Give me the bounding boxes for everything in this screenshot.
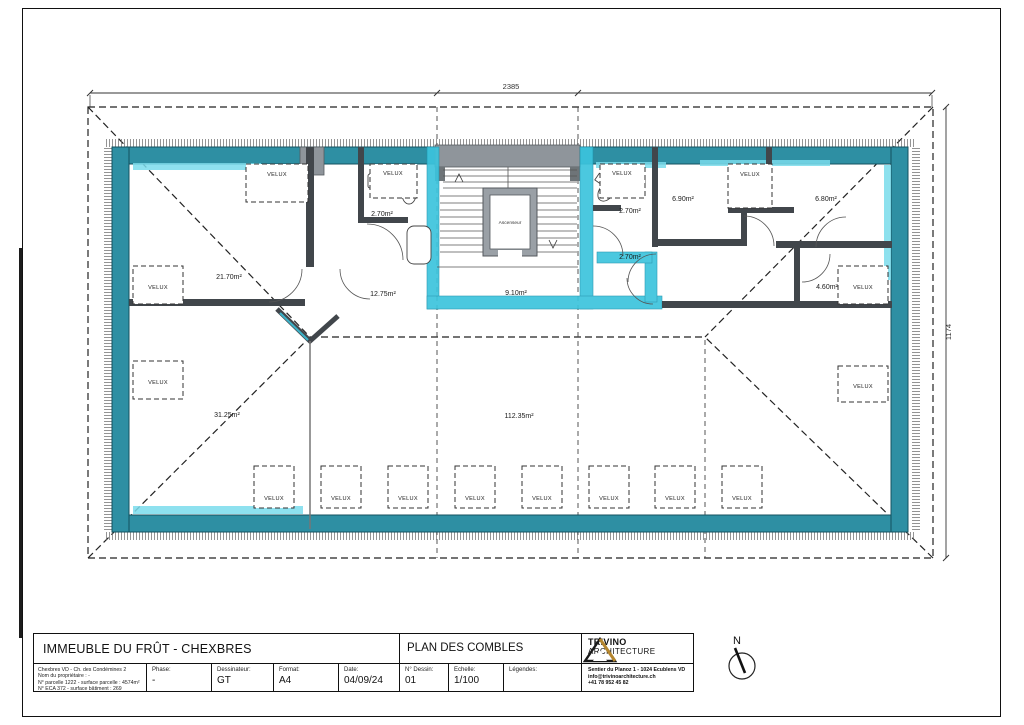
- room-label: 6.80m²: [815, 196, 837, 203]
- phase-value: -: [147, 673, 211, 686]
- floor-plan: 2385 1174: [0, 0, 1024, 620]
- date-cell: Date: 04/09/24: [338, 663, 399, 691]
- velux-label: VELUX: [465, 496, 485, 502]
- dim-right-value: 1174: [944, 324, 953, 340]
- velux-label: VELUX: [740, 172, 760, 178]
- room-label: 2.70m²: [619, 254, 641, 261]
- roof-outline: [88, 107, 933, 558]
- scale-cell: Echelle: 1/100: [448, 663, 503, 691]
- firm-phone: +41 78 952 45 82: [588, 680, 685, 687]
- legend-cell: Légendes:: [503, 663, 581, 691]
- room-label: 31.25m²: [214, 412, 240, 419]
- info-line-4: N° ECA 372 - surface bâtiment : 269: [38, 686, 146, 691]
- dimension-top: 2385: [87, 82, 935, 107]
- velux-label: VELUX: [383, 171, 403, 177]
- drafter-value: GT: [212, 673, 273, 686]
- project-info: Chexbres VD - Ch. des Condémines 2 Nom d…: [34, 664, 146, 691]
- drawing-sheet: 2385 1174: [0, 0, 1024, 725]
- north-label: N: [733, 635, 741, 647]
- date-value: 04/09/24: [339, 673, 399, 686]
- angled-wall-highlight: [280, 313, 308, 340]
- angled-wall: [277, 309, 338, 341]
- firm-cell: TRIVINO ARCHITECTURE Sentier du Planoz 1…: [581, 634, 693, 691]
- dimension-right: 1174: [943, 104, 953, 561]
- room-label: 12.75m²: [370, 291, 396, 298]
- room-label: 2.70m²: [371, 211, 393, 218]
- project-title: IMMEUBLE DU FRÛT - CHEXBRES: [34, 634, 399, 656]
- velux-label: VELUX: [853, 384, 873, 390]
- elevator: Ascenseur: [483, 188, 537, 257]
- phase-cell: Phase: -: [146, 663, 211, 691]
- door-arcs: [269, 216, 846, 304]
- velux-label: VELUX: [398, 496, 418, 502]
- room-label: 4.60m²: [816, 284, 838, 291]
- scale-label: Echelle:: [449, 664, 503, 673]
- dim-top-value: 2385: [503, 82, 520, 91]
- legend-label: Légendes:: [504, 664, 581, 673]
- velux-label: VELUX: [264, 496, 284, 502]
- project-title-cell: IMMEUBLE DU FRÛT - CHEXBRES: [34, 634, 399, 663]
- drafter-label: Dessinateur:: [212, 664, 273, 673]
- drafter-cell: Dessinateur: GT: [211, 663, 273, 691]
- velux-label: VELUX: [331, 496, 351, 502]
- velux-label: VELUX: [732, 496, 752, 502]
- velux-label: VELUX: [599, 496, 619, 502]
- room-label: 2.70m²: [619, 208, 641, 215]
- room-label: 21.70m²: [216, 274, 242, 281]
- drawing-number-cell: N° Dessin: 01: [399, 663, 448, 691]
- scale-value: 1/100: [449, 673, 503, 686]
- drawing-title-cell: PLAN DES COMBLES: [399, 634, 581, 663]
- format-cell: Format: A4: [273, 663, 338, 691]
- format-label: Format:: [274, 664, 338, 673]
- firm-email: info@trivinoarchitecture.ch: [588, 674, 685, 681]
- room-label: 6.90m²: [672, 196, 694, 203]
- elevator-label: Ascenseur: [499, 220, 522, 226]
- firm-logo: [582, 637, 618, 663]
- velux-label: VELUX: [148, 380, 168, 386]
- phase-label: Phase:: [147, 664, 211, 673]
- drawing-number-label: N° Dessin:: [400, 664, 448, 673]
- format-value: A4: [274, 673, 338, 686]
- firm-contact: Sentier du Planoz 1 - 1024 Ecublens VD i…: [582, 664, 685, 687]
- drawing-title: PLAN DES COMBLES: [400, 634, 581, 654]
- room-label: 112.35m²: [504, 413, 534, 420]
- velux-label: VELUX: [665, 496, 685, 502]
- north-arrow: N: [712, 630, 772, 690]
- velux-label: VELUX: [148, 285, 168, 291]
- velux-label: VELUX: [612, 171, 632, 177]
- velux-label: VELUX: [267, 172, 287, 178]
- project-info-cell: Chexbres VD - Ch. des Condémines 2 Nom d…: [34, 663, 146, 691]
- velux-label: VELUX: [853, 285, 873, 291]
- room-label: 9.10m²: [505, 290, 527, 297]
- title-block: IMMEUBLE DU FRÛT - CHEXBRES PLAN DES COM…: [33, 633, 694, 692]
- date-label: Date:: [339, 664, 399, 673]
- drawing-number-value: 01: [400, 673, 448, 686]
- velux-label: VELUX: [532, 496, 552, 502]
- firm-address: Sentier du Planoz 1 - 1024 Ecublens VD: [588, 667, 685, 674]
